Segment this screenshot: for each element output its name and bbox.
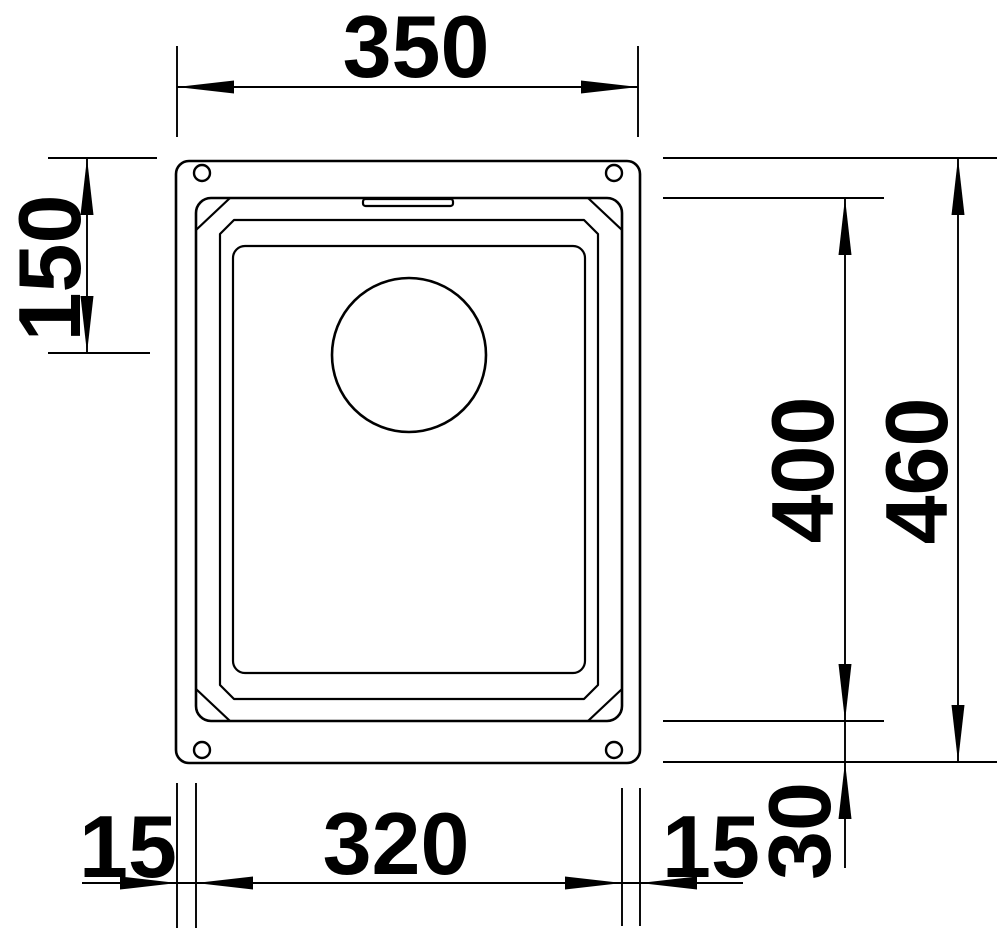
arrowhead bbox=[177, 81, 234, 94]
arrowhead bbox=[581, 81, 638, 94]
dim-label-right-rim: 15 bbox=[662, 797, 760, 896]
dim-label-bowl-length: 400 bbox=[753, 397, 852, 544]
dim-label-overall-length: 460 bbox=[867, 398, 966, 545]
arrowhead bbox=[952, 705, 965, 762]
overflow-slot bbox=[363, 199, 453, 206]
arrowhead bbox=[565, 877, 622, 890]
mounting-hole bbox=[606, 165, 622, 181]
dim-label-bottom-rim: 30 bbox=[750, 782, 849, 880]
mounting-hole bbox=[194, 742, 210, 758]
dim-label-drain-offset: 150 bbox=[0, 195, 99, 342]
sink-body bbox=[176, 161, 640, 763]
bowl-bottom-outline bbox=[233, 246, 585, 673]
bowl-mid-contour bbox=[220, 220, 598, 699]
dim-label-bowl-width: 320 bbox=[323, 794, 470, 893]
arrowhead bbox=[952, 158, 965, 215]
dim-label-left-rim: 15 bbox=[79, 797, 177, 896]
drawing-canvas: 350 150 400 460 30 15 320 15 bbox=[0, 0, 1000, 933]
arrowhead bbox=[196, 877, 253, 890]
arrowhead bbox=[839, 664, 852, 721]
arrowhead bbox=[839, 198, 852, 255]
mounting-hole bbox=[194, 165, 210, 181]
mounting-hole bbox=[606, 742, 622, 758]
drain-circle bbox=[332, 278, 486, 432]
dim-label-overall-width: 350 bbox=[343, 0, 490, 96]
extension-lines bbox=[48, 46, 997, 928]
bowl-rim-outline bbox=[196, 198, 622, 721]
sink-dimension-drawing: 350 150 400 460 30 15 320 15 bbox=[0, 0, 1000, 933]
